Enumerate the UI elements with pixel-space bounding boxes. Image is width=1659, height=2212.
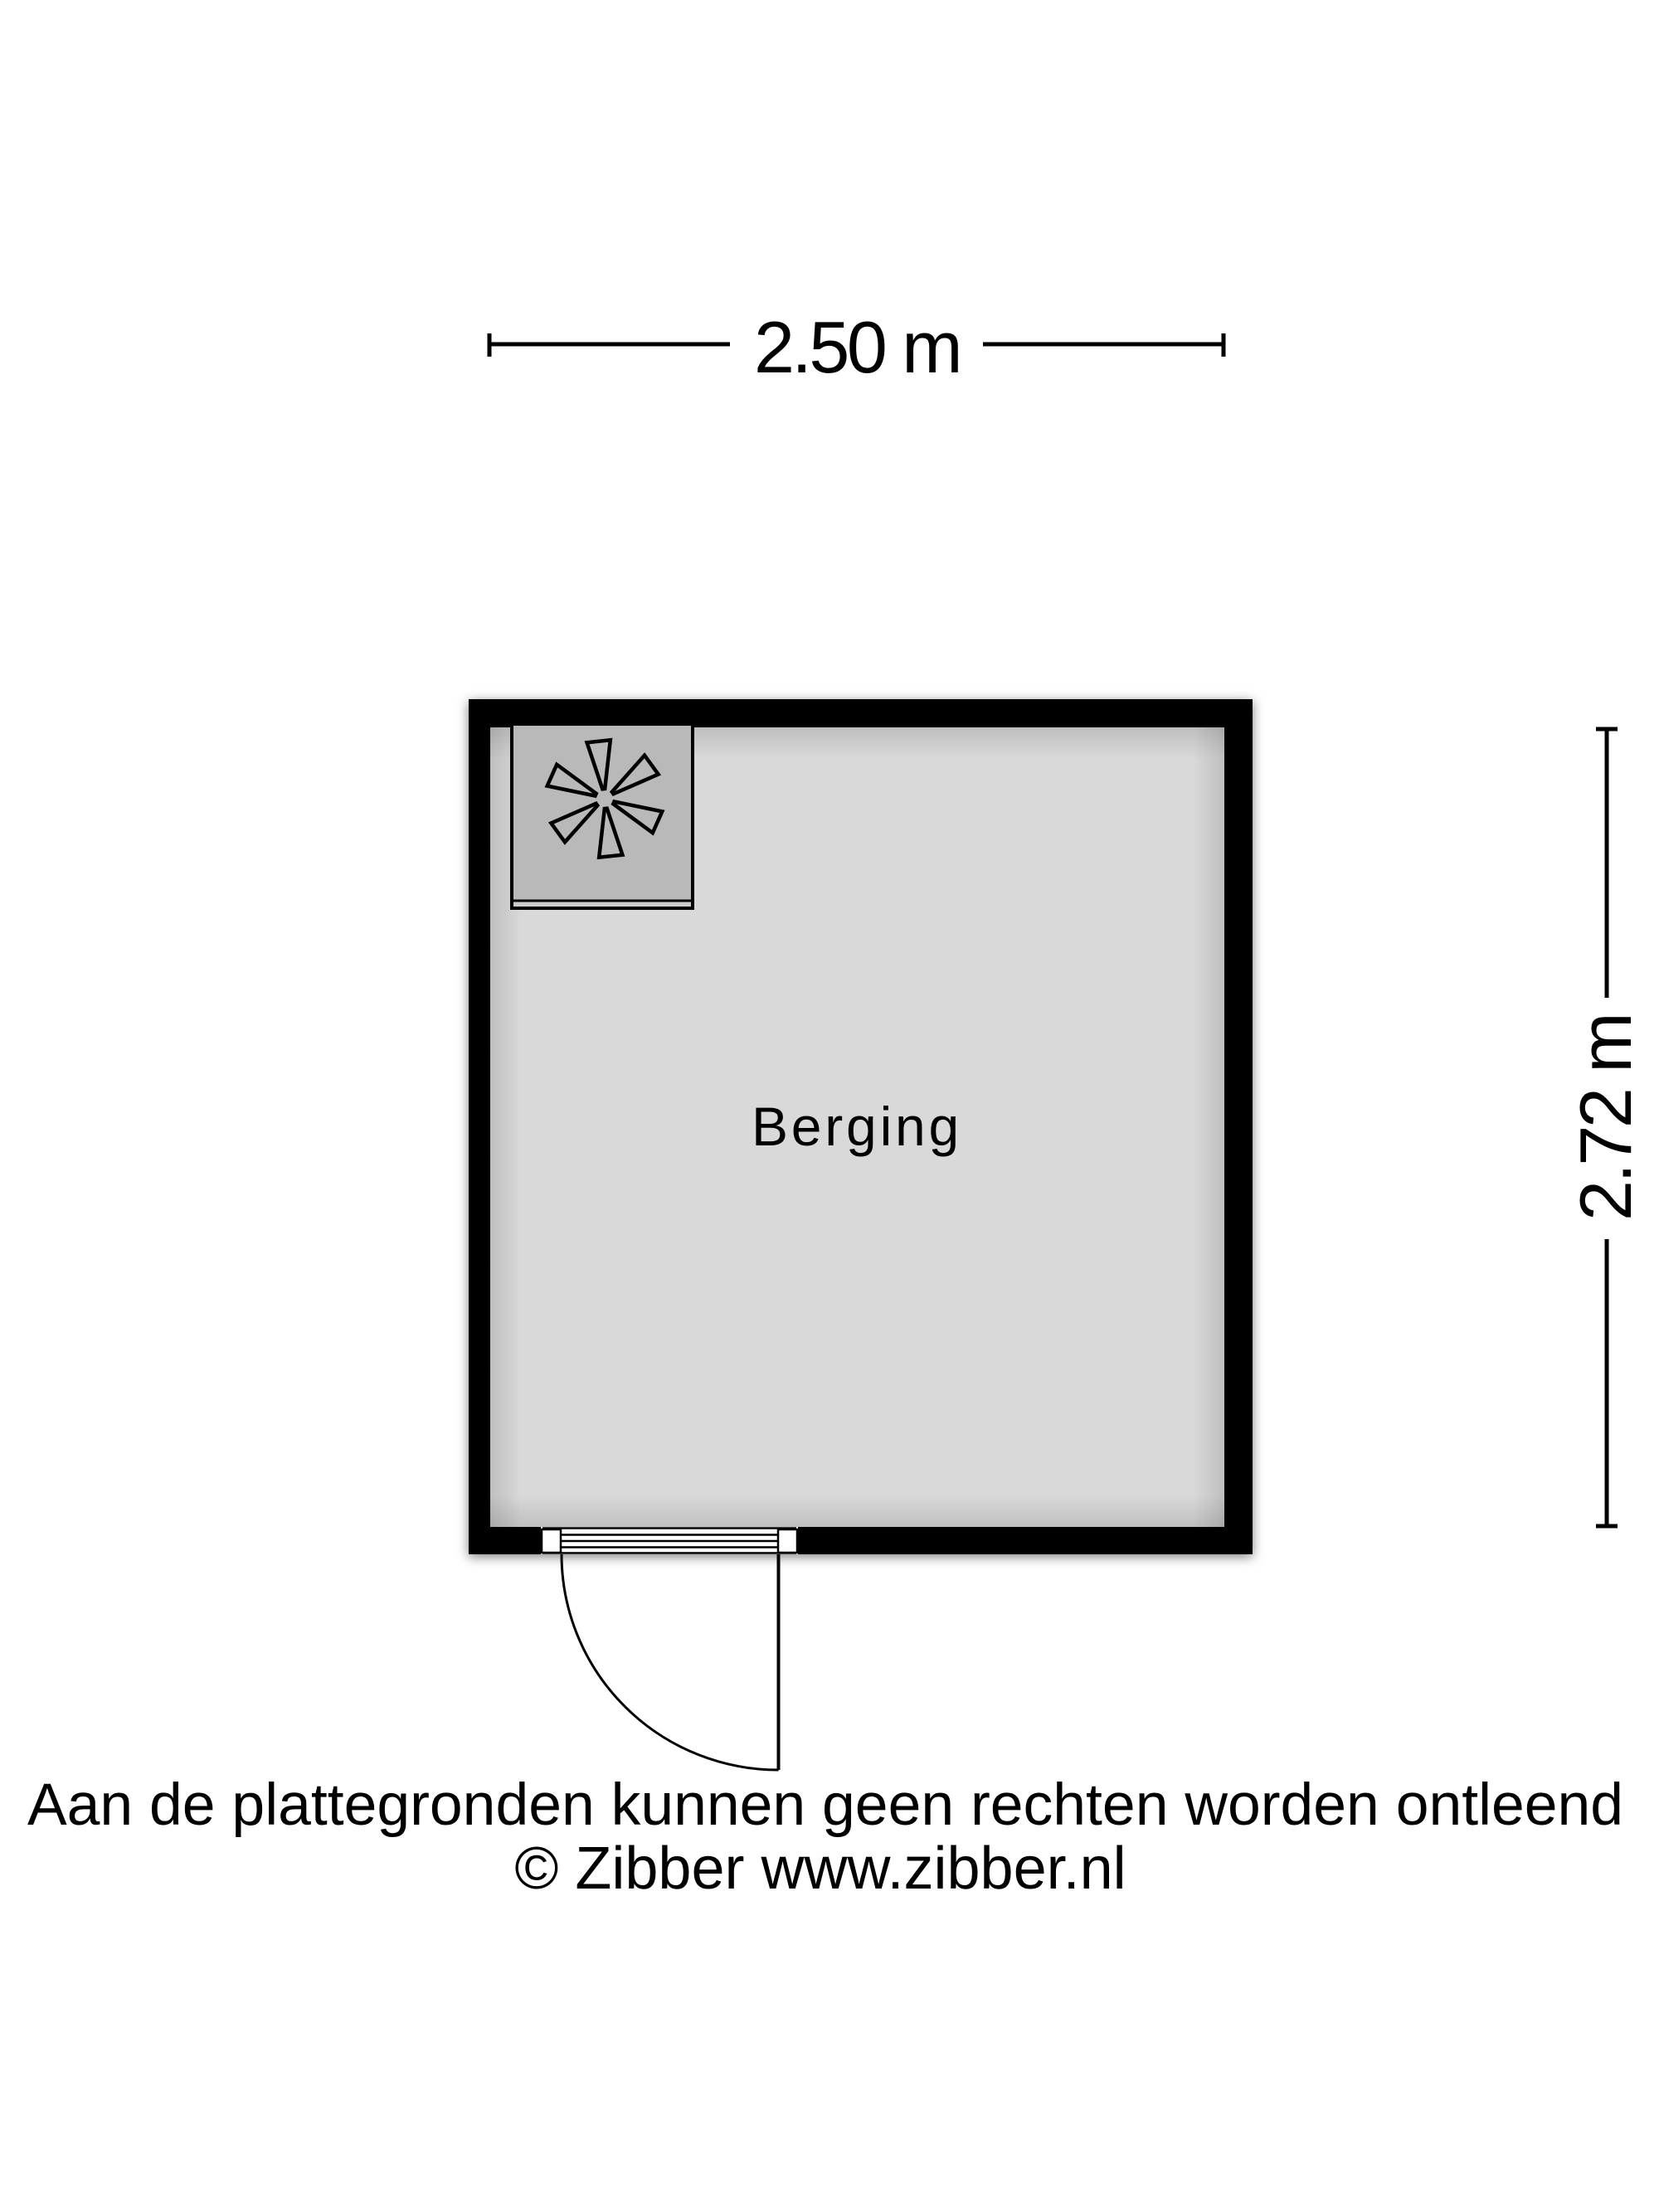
svg-text:Berging: Berging: [752, 1096, 962, 1157]
svg-text:© Zibber www.zibber.nl: © Zibber www.zibber.nl: [514, 1835, 1126, 1902]
svg-text:2.72 m: 2.72 m: [1564, 1015, 1647, 1221]
svg-text:Aan de plattegronden kunnen ge: Aan de plattegronden kunnen geen rechten…: [27, 1772, 1623, 1838]
svg-text:2.50 m: 2.50 m: [754, 306, 960, 388]
